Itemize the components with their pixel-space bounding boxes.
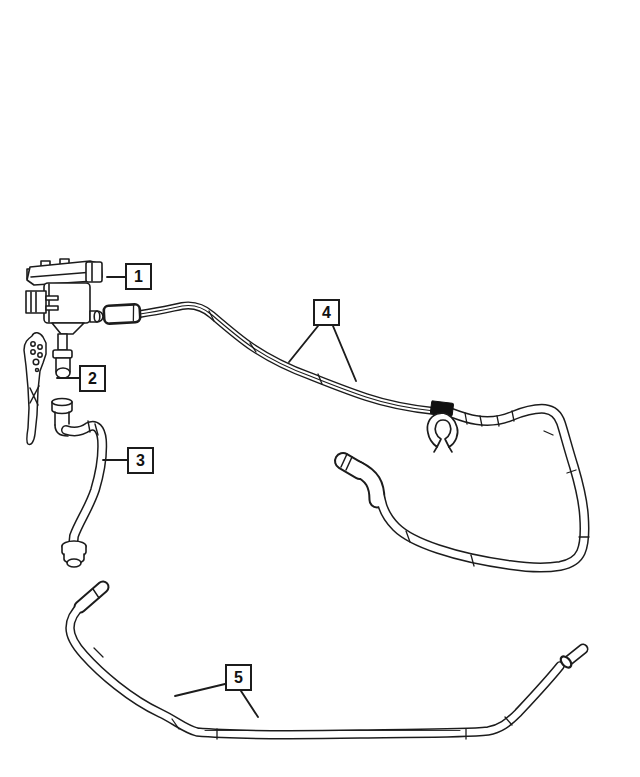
- valve-body: [44, 283, 90, 323]
- callout-2-label: 2: [88, 371, 97, 387]
- bracket-hole: [38, 345, 42, 349]
- bracket-hole: [31, 350, 35, 354]
- purge-hose-drawing: [52, 399, 102, 568]
- leader-line-4b: [333, 326, 356, 381]
- hose5-body-inner: [70, 605, 560, 735]
- callout-1-box: 1: [125, 263, 152, 290]
- callout-3-label: 3: [136, 453, 145, 469]
- hose3-end-tip: [67, 559, 81, 567]
- bracket-hole: [38, 353, 42, 357]
- valve-port-tip: [56, 368, 70, 378]
- callout-4-label: 4: [322, 305, 331, 321]
- bracket-hole: [31, 342, 35, 346]
- callout-3-box: 3: [127, 447, 154, 474]
- valve-nipple-rim: [94, 311, 100, 322]
- valve-taper: [52, 323, 84, 334]
- tube4-thin-outer: [140, 305, 434, 411]
- tube4-thin-inner: [140, 305, 434, 411]
- callout-1-label: 1: [134, 269, 143, 285]
- leader-line-5b: [241, 691, 258, 717]
- hose5-segment-ticks: [94, 648, 512, 739]
- leader-line-5a: [175, 684, 225, 696]
- purge-hose-inner: [66, 426, 102, 546]
- tube4-wishbone-feet: [434, 447, 452, 452]
- mounting-bracket-drawing: [24, 333, 46, 445]
- valve-connector-pin: [46, 306, 58, 310]
- tube4-loop-inner: [379, 409, 585, 568]
- tube4-loop-outer: [379, 409, 585, 568]
- tube4-center-line: [140, 305, 434, 411]
- valve-stem: [58, 334, 67, 350]
- parts-diagram: 1 2 3 4 5: [0, 0, 640, 777]
- leader-line-4a: [289, 326, 318, 362]
- valve-collar: [53, 350, 72, 358]
- hose3-fitting-top: [52, 399, 72, 406]
- hose5-body-outer: [70, 605, 560, 735]
- bracket-hole: [36, 369, 39, 372]
- bracket-hole: [33, 359, 39, 365]
- tube4-wishbone-clip: [427, 413, 457, 447]
- callout-4-box: 4: [313, 299, 340, 326]
- callout-2-box: 2: [79, 365, 106, 392]
- valve-bracket-block: [86, 262, 102, 282]
- valve-connector-pin: [46, 296, 58, 300]
- callout-5-label: 5: [234, 670, 243, 686]
- tube4-end-cap: [104, 304, 141, 324]
- vapor-tube-assembly-drawing: [104, 304, 589, 567]
- vent-hose-drawing: [70, 587, 583, 739]
- callout-5-box: 5: [225, 664, 252, 691]
- bracket-strap-outline: [24, 333, 46, 445]
